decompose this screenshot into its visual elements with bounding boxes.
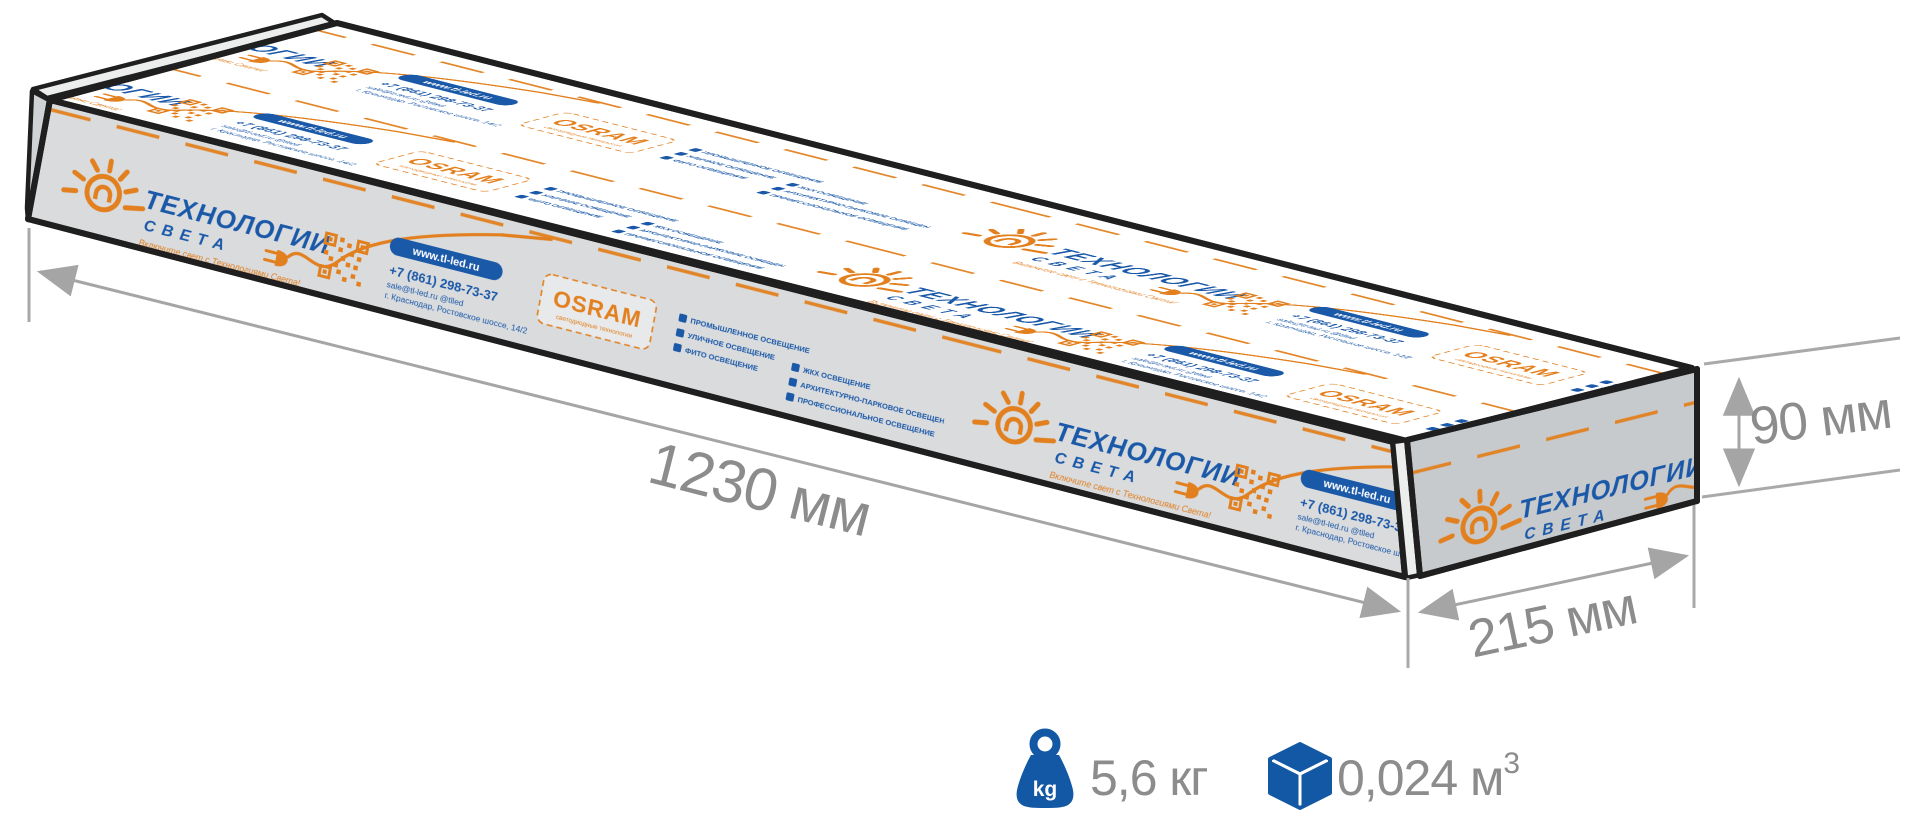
length-dimension-label: 1230 мм [642,429,877,549]
volume-value-label: 0,024 м3 [1337,747,1519,806]
extension-line [1702,470,1900,497]
height-dimension-label: 90 мм [1747,381,1895,457]
weight-icon: kg [1017,733,1074,809]
extension-line [1704,338,1900,364]
package-dimensions-diagram: ТЕХНОЛОГИИ СВЕТА Включите свет с Техноло… [0,0,1906,815]
weight-icon-kg-label: kg [1033,778,1058,801]
height-dimension: 90 мм [1702,338,1900,497]
weight-value-label: 5,6 кг [1090,750,1208,806]
diagram-canvas: ТЕХНОЛОГИИ СВЕТА Включите свет с Техноло… [0,0,1906,815]
volume-info: 0,024 м3 [1270,744,1519,808]
weight-info: kg 5,6 кг [1017,733,1208,809]
volume-cube-icon [1270,744,1330,808]
depth-dimension-label: 215 мм [1463,576,1642,669]
